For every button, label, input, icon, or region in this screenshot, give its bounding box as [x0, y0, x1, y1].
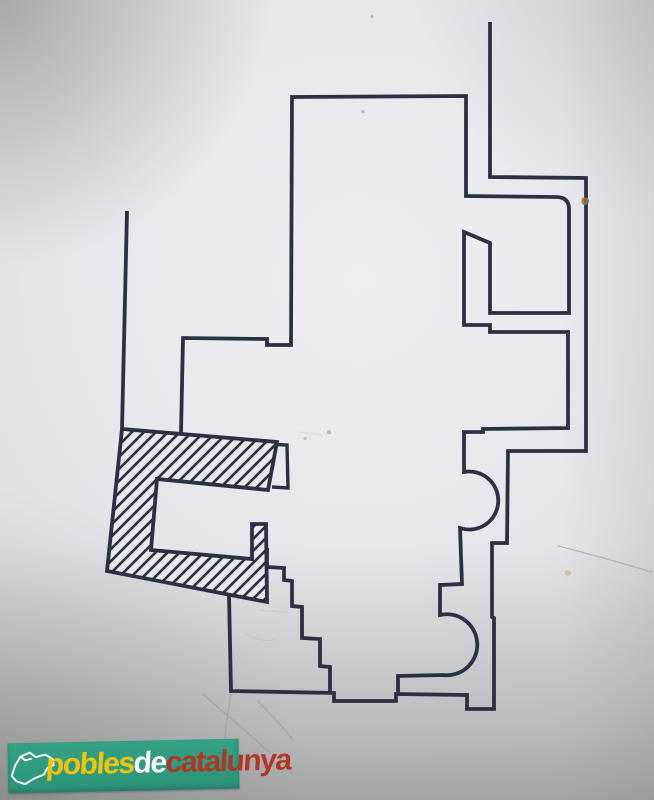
- pencil-smudge: [300, 432, 322, 435]
- hatched-tower-block: [107, 429, 277, 602]
- paper-stain: [565, 570, 571, 576]
- pencil-smudge: [246, 634, 277, 640]
- right-outer-wall-outline: [229, 22, 586, 709]
- pencil-scratch: [258, 701, 293, 740]
- paper-stain: [581, 197, 589, 205]
- logo-wordmark: poblesdecatalunya: [45, 743, 292, 782]
- staircase-steps-outline: [267, 548, 330, 692]
- floor-plan-drawing: [0, 0, 654, 800]
- church-nave-outline: [181, 96, 569, 693]
- logo-word-de: de: [133, 746, 167, 780]
- pencil-smudge: [260, 610, 288, 613]
- pencil-scratch: [558, 546, 652, 572]
- logo-word-pobles: pobles: [45, 747, 135, 782]
- pobles-de-catalunya-logo: poblesdecatalunya: [8, 739, 240, 794]
- paper-background: poblesdecatalunya: [0, 0, 654, 800]
- left-detached-wall-line: [122, 211, 127, 429]
- paper-specks: [303, 15, 373, 440]
- logo-word-catalunya: catalunya: [165, 743, 292, 779]
